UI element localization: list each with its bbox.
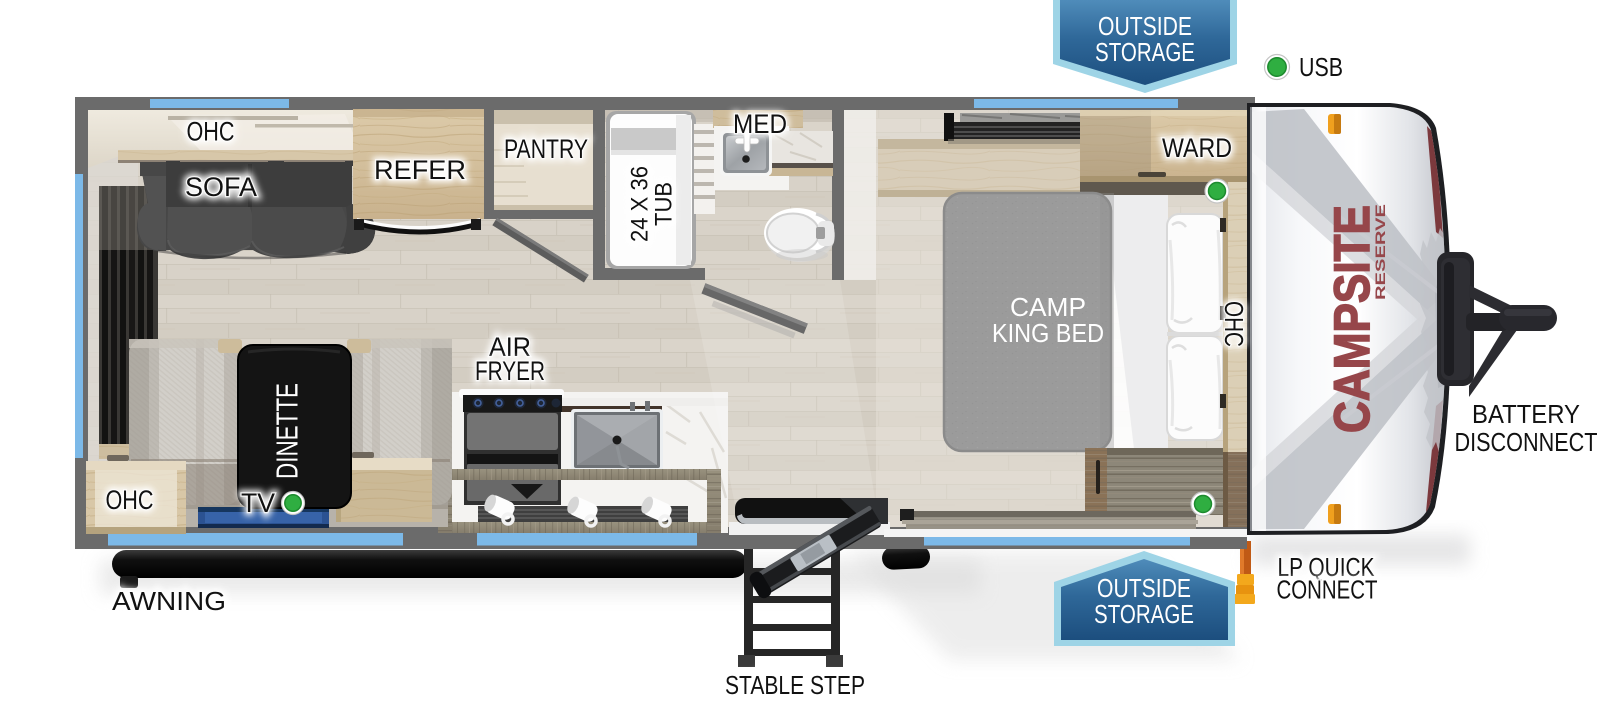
svg-text:AWNING: AWNING bbox=[112, 586, 226, 616]
svg-text:MED: MED bbox=[733, 109, 787, 139]
svg-text:RESERVE: RESERVE bbox=[1372, 204, 1388, 300]
svg-text:OHC: OHC bbox=[1219, 301, 1249, 347]
svg-text:PANTRY: PANTRY bbox=[504, 134, 588, 164]
svg-text:WARD: WARD bbox=[1162, 133, 1232, 163]
svg-text:STORAGE: STORAGE bbox=[1094, 599, 1194, 629]
svg-text:TUB: TUB bbox=[651, 182, 678, 226]
svg-text:CONNECT: CONNECT bbox=[1277, 575, 1378, 605]
svg-text:24 X 36: 24 X 36 bbox=[627, 166, 654, 242]
svg-text:TV: TV bbox=[241, 488, 275, 518]
svg-text:STABLE STEP: STABLE STEP bbox=[725, 670, 865, 700]
svg-text:FRYER: FRYER bbox=[475, 356, 545, 386]
svg-text:DISCONNECT: DISCONNECT bbox=[1455, 427, 1598, 457]
svg-text:KING BED: KING BED bbox=[992, 318, 1104, 348]
svg-text:REFER: REFER bbox=[374, 155, 466, 185]
svg-text:STORAGE: STORAGE bbox=[1095, 37, 1195, 67]
svg-text:DINETTE: DINETTE bbox=[270, 383, 305, 479]
svg-text:SOFA: SOFA bbox=[185, 172, 257, 202]
svg-text:BATTERY: BATTERY bbox=[1472, 399, 1580, 429]
svg-text:OHC: OHC bbox=[187, 117, 235, 147]
svg-text:OHC: OHC bbox=[106, 485, 154, 515]
svg-text:USB: USB bbox=[1299, 52, 1343, 82]
